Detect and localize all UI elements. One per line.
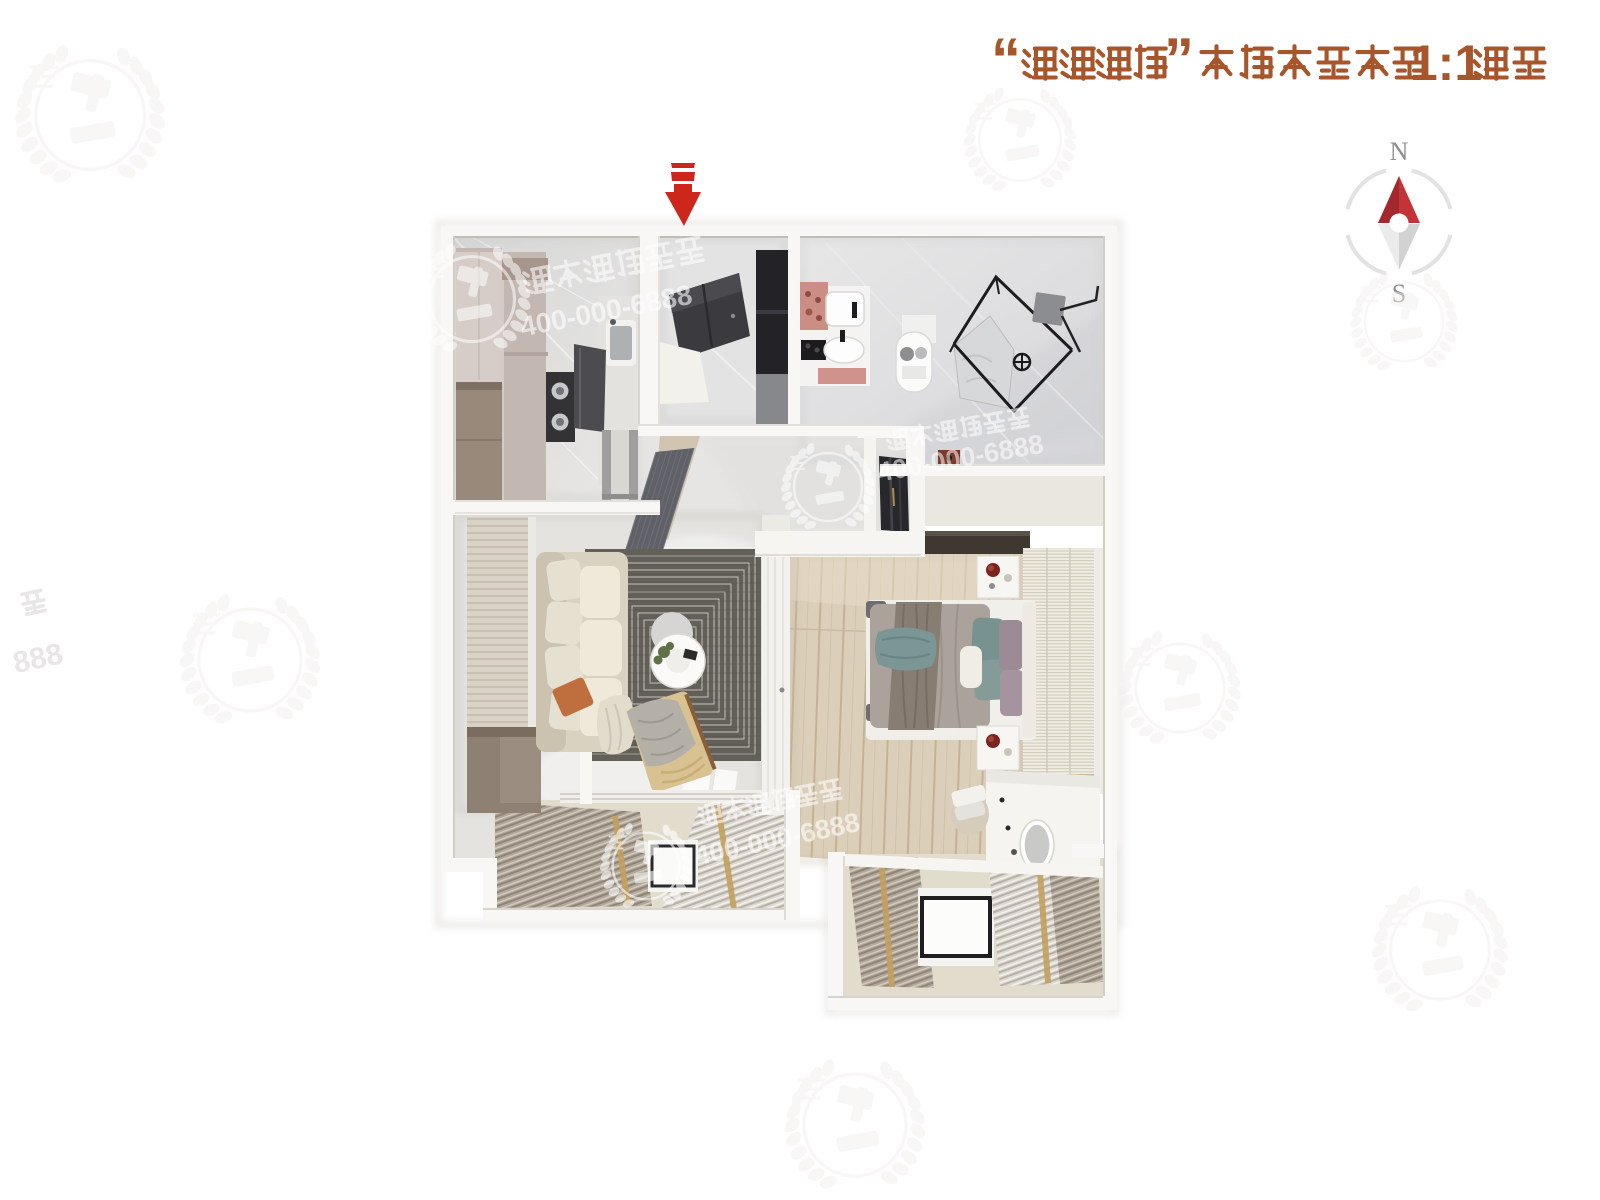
svg-text:”: ” [1164, 26, 1194, 93]
svg-text:N: N [1390, 137, 1409, 166]
svg-text:“: “ [991, 26, 1021, 93]
svg-text:1:1: 1:1 [1410, 35, 1482, 91]
